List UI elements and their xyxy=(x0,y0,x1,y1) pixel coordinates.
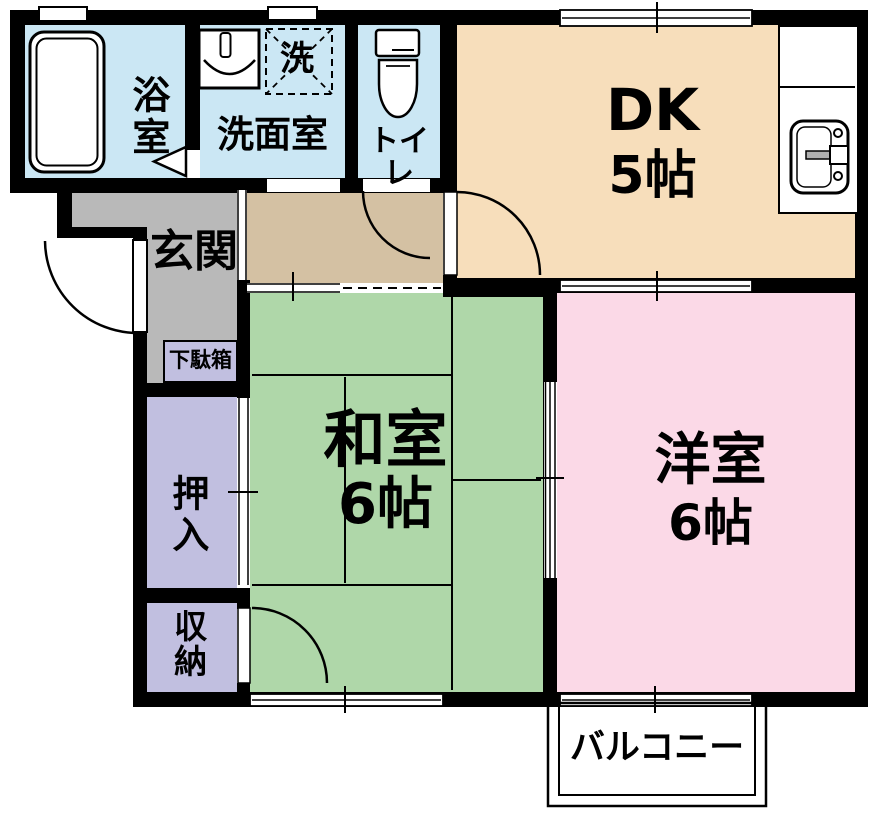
wall-washitsu-topright xyxy=(443,283,557,297)
shuno-door-leaf xyxy=(238,608,250,683)
wall-shuno-door-bottom xyxy=(237,683,250,692)
wall-left-upper xyxy=(10,25,25,193)
washitsu-label-group: 和室 6帖 xyxy=(288,407,483,535)
dk-youshitsu-slider xyxy=(560,280,752,292)
hall-washitsu-opening-left xyxy=(247,283,340,293)
shuno-label: 収納 xyxy=(170,601,205,686)
floor-plan: 浴室 洗面室 洗 トイレ DK 5帖 玄関 下駄箱 押入 収納 和室 6帖 洋室… xyxy=(0,0,874,813)
dk-door-leaf xyxy=(444,192,457,275)
washitsu-size-label: 6帖 xyxy=(288,476,483,535)
washroom-label: 洗面室 xyxy=(200,116,345,155)
oshiire-label: 押入 xyxy=(167,450,206,580)
youshitsu-size-label: 6帖 xyxy=(628,497,793,550)
washitsu-bottom-window xyxy=(250,694,443,706)
wall-bath-washroom xyxy=(185,25,200,150)
oshiire-fusuma-strip xyxy=(237,398,250,585)
bath-vent-window xyxy=(38,6,88,22)
hall-washitsu-opening-right xyxy=(340,283,443,293)
entrance-door-arc xyxy=(45,241,139,333)
dk-label: DK xyxy=(560,80,745,141)
washer-label: 洗 xyxy=(280,42,314,78)
genkan-label: 玄関 xyxy=(148,229,240,275)
washroom-vent-window xyxy=(267,6,318,21)
dk-size-label: 5帖 xyxy=(560,149,745,204)
balcony-label: バルコニー xyxy=(558,730,756,767)
wall-toilet-dk xyxy=(440,10,457,192)
youshitsu-label-group: 洋室 6帖 xyxy=(628,432,793,549)
toilet-label: トイレ xyxy=(356,126,442,189)
wall-bottom xyxy=(133,692,868,707)
kitchen-counter xyxy=(778,25,859,214)
washitsu-youshitsu-slider xyxy=(544,382,557,578)
dk-label-group: DK 5帖 xyxy=(560,80,745,203)
wall-genkan-oshiire xyxy=(133,383,250,397)
youshitsu-label: 洋室 xyxy=(628,432,793,491)
wall-washitsu-left xyxy=(237,280,250,398)
getabako-label: 下駄箱 xyxy=(163,349,238,371)
dk-top-window xyxy=(560,10,752,26)
youshitsu-balcony-window xyxy=(560,694,752,706)
washitsu-label: 和室 xyxy=(288,407,483,472)
washroom-door-opening xyxy=(267,179,340,192)
hall-area xyxy=(247,193,443,283)
wall-left-lower xyxy=(133,227,147,707)
bath-label: 浴室 xyxy=(127,52,167,182)
wall-shuno-door-top xyxy=(237,603,250,609)
